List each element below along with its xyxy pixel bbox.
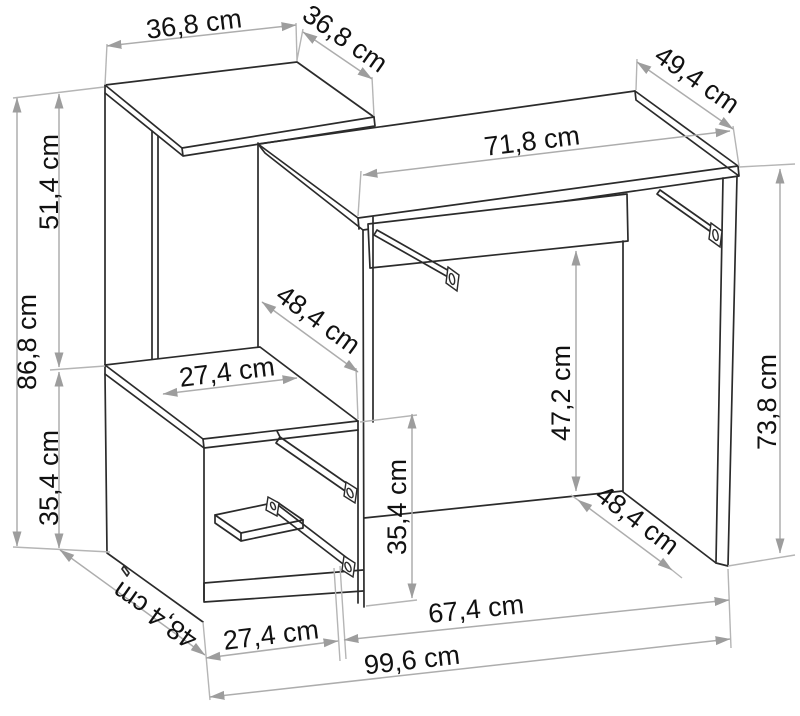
cabinet-bottom-panel (204, 570, 363, 602)
dim-label-drawer-section-height: 35,4 cm (382, 459, 412, 555)
drawer-slide-upper (276, 431, 357, 503)
dim-label-knee-clearance: 47,2 cm (546, 345, 576, 441)
dim-label-drawer-opening-width: 27,4 cm (221, 614, 320, 655)
cabinet-inner-shelf (215, 502, 303, 541)
dim-label-desk-height: 73,8 cm (752, 354, 782, 450)
dim-label-upper-section-depth: 48,4 cm (271, 279, 366, 360)
right-bracket (657, 190, 722, 247)
dim-label-desktop-depth: 49,4 cm (649, 40, 745, 120)
dim-label-left-unit-height: 86,8 cm (12, 294, 42, 390)
dim-desk-opening-width (344, 600, 729, 640)
furniture-dimension-diagram: 36,8 cm 36,8 cm 49,4 cm 71,8 cm 86,8 cm … (0, 0, 800, 716)
dim-label-upper-section-height: 51,4 cm (34, 134, 64, 230)
dim-label-top-shelf-width: 36,8 cm (144, 3, 243, 44)
dim-label-total-width: 99,6 cm (363, 640, 462, 681)
dim-label-lower-section-height: 35,4 cm (34, 430, 64, 526)
dim-label-top-shelf-depth: 36,8 cm (297, 0, 393, 78)
diagram-canvas: 36,8 cm 36,8 cm 49,4 cm 71,8 cm 86,8 cm … (0, 0, 800, 716)
